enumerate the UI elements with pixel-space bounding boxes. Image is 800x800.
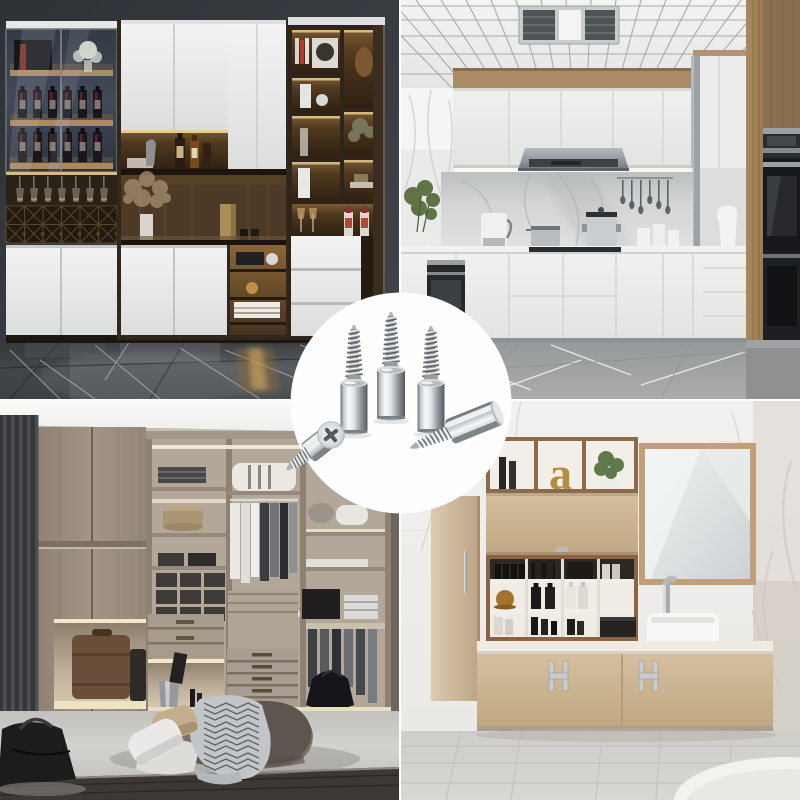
svg-text:a: a (549, 448, 572, 499)
